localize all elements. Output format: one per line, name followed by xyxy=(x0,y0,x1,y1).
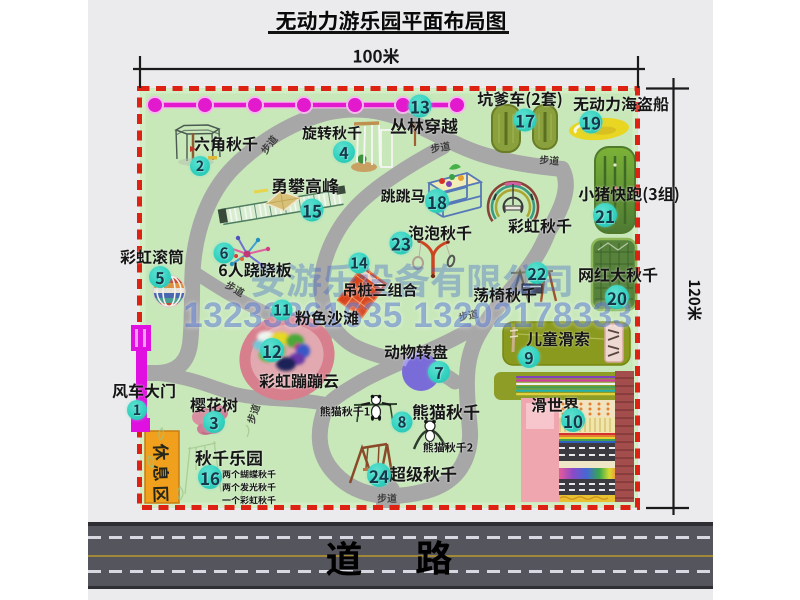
svg-text:120米: 120米 xyxy=(684,279,705,321)
svg-text:步道: 步道 xyxy=(377,490,397,505)
svg-text:区: 区 xyxy=(149,485,175,503)
svg-text:休: 休 xyxy=(149,443,175,461)
svg-text:步道: 步道 xyxy=(539,151,560,167)
